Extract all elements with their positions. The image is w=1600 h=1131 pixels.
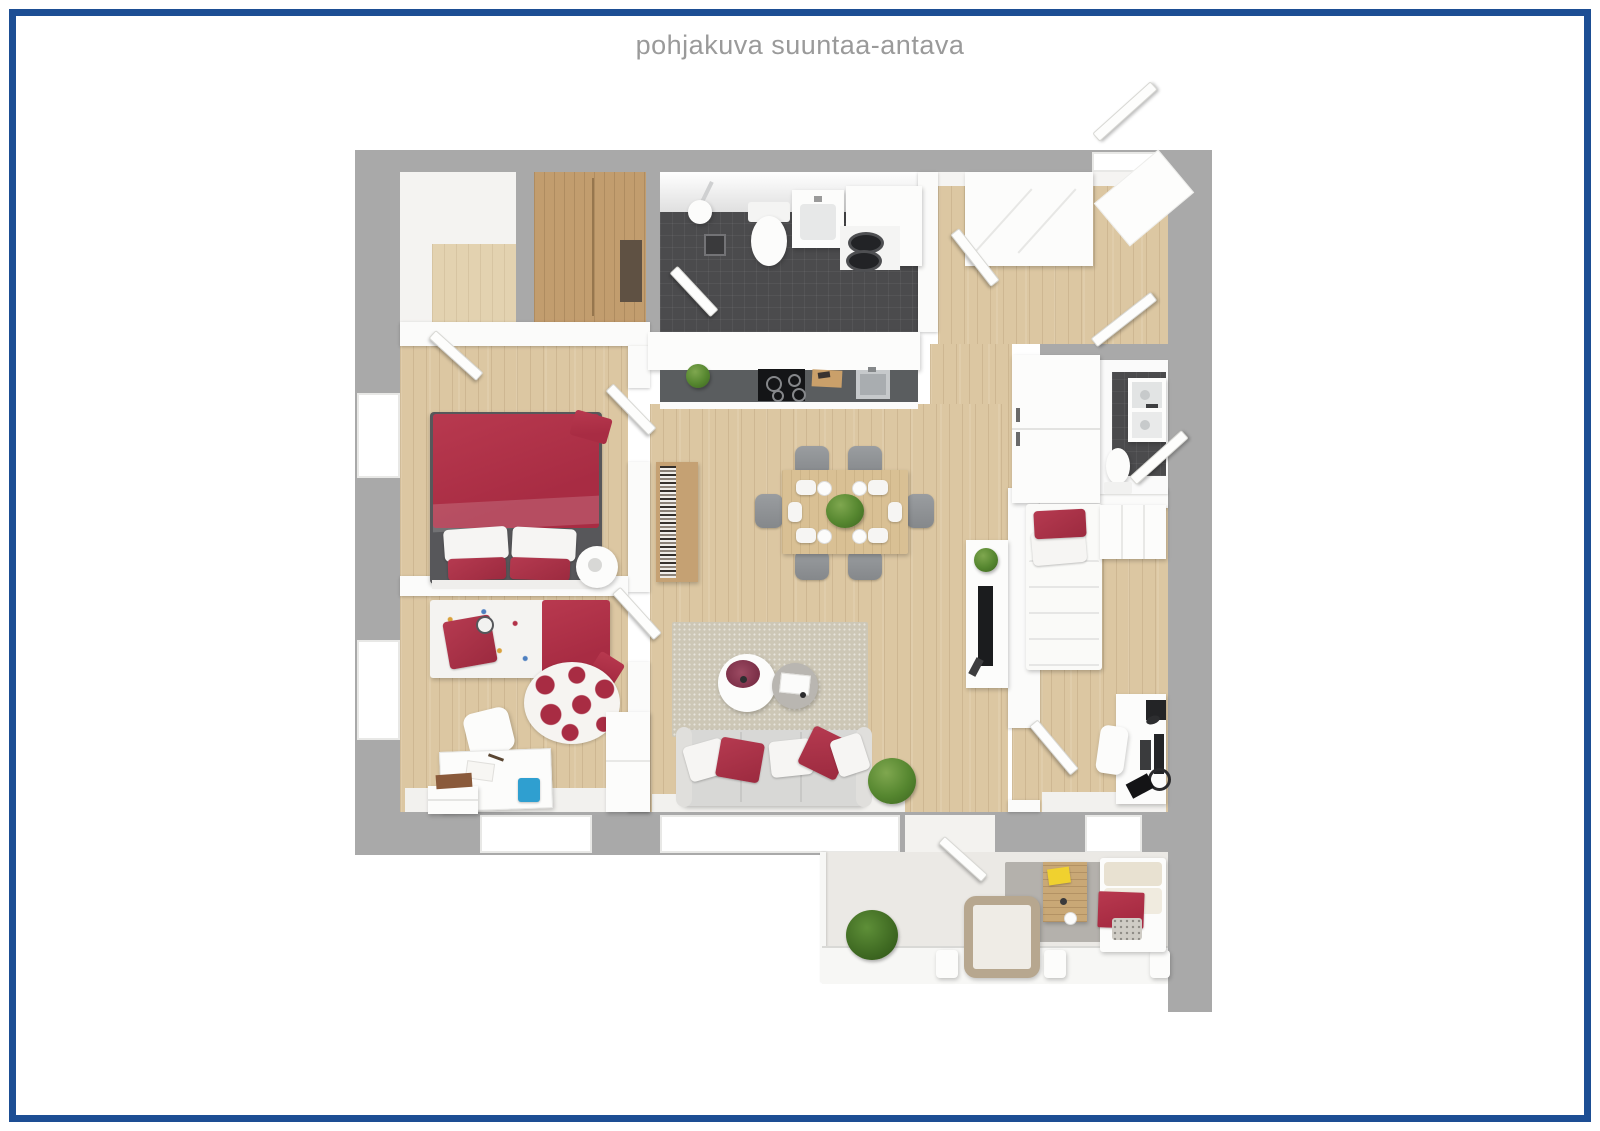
wall-left [355, 150, 400, 855]
toilet2-bowl [1106, 448, 1130, 484]
floorplan-page: pohjakuva suuntaa-antava [0, 0, 1600, 1131]
toilet-bowl [751, 216, 787, 266]
floor-drain-icon [704, 234, 726, 256]
burner-icon [788, 374, 801, 387]
kitchen-cabinet-front [660, 402, 918, 409]
accent-pillow [448, 557, 507, 581]
vanity-faucet [814, 196, 822, 202]
table-centerpiece-plant [826, 494, 864, 528]
wall-right [1168, 150, 1212, 1012]
table-decor-dot [800, 692, 806, 698]
tv-icon [978, 586, 993, 666]
kitchen-upper-cabinets [648, 332, 920, 370]
vanity2-faucet [1146, 404, 1158, 408]
wardrobe-shelf [620, 240, 642, 302]
window-kids-bottom [480, 815, 592, 853]
floor-plant [868, 758, 916, 804]
place-setting [868, 528, 888, 543]
closet-wood-floor [432, 244, 516, 322]
wardrobe2-seam [1121, 505, 1123, 559]
flower-bouquet [726, 660, 760, 688]
wardrobe2-seam [1143, 505, 1145, 559]
railing-post [1150, 950, 1170, 978]
toilet2-tank [1104, 482, 1132, 494]
railing-post [936, 950, 958, 978]
bed-headboard [432, 580, 600, 589]
burner-icon [772, 390, 784, 402]
wicker-chair [964, 896, 1040, 978]
open-front-door [1092, 81, 1157, 141]
wall-sauna-bath [646, 172, 660, 334]
balcony-bush-plant [846, 910, 898, 960]
railing-post [1044, 950, 1066, 978]
plate-icon [817, 481, 832, 496]
bedroom2-pillow-red [1033, 509, 1086, 540]
bookshelf-books [660, 466, 676, 578]
vase-icon [740, 676, 747, 683]
vanity2-sink-icon [1140, 390, 1150, 400]
kids-wardrobe [606, 712, 650, 812]
vanity2-sink-icon [1140, 420, 1150, 430]
partition-hall-upper [628, 346, 650, 388]
blue-bin [518, 778, 540, 802]
partition-hall-mid [628, 462, 650, 592]
window-kids-left [357, 640, 400, 740]
place-setting [868, 480, 888, 495]
shower-head-icon [688, 200, 712, 224]
drawer-seam [428, 799, 478, 801]
wall-top [355, 150, 1212, 172]
magazine [779, 672, 811, 695]
partition-living-bedroom2-stub [1008, 800, 1040, 812]
dining-chair [848, 550, 882, 580]
balcony-cushion [1104, 862, 1162, 886]
vanity-sink [800, 204, 836, 240]
place-setting [796, 528, 816, 543]
place-setting [796, 480, 816, 495]
kitchen-sink [856, 370, 890, 399]
dining-chair [755, 494, 783, 528]
window-master-left [357, 393, 400, 478]
fridge-seam [1012, 428, 1100, 430]
plate-icon [852, 481, 867, 496]
keyboard-icon [1140, 740, 1151, 770]
place-setting [788, 502, 802, 522]
burner-icon [792, 388, 806, 402]
fridge-handle [1016, 432, 1020, 446]
tv-stand-plant [974, 548, 998, 572]
entry-closet [965, 172, 1093, 266]
panda-toy-icon [476, 616, 494, 634]
plate-icon [817, 529, 832, 544]
kitchen-faucet [868, 367, 876, 372]
dining-chair [906, 494, 934, 528]
yellow-book [1047, 867, 1071, 886]
patterned-pillow [1112, 918, 1142, 940]
dining-chair [795, 550, 829, 580]
bedside-decor [588, 558, 602, 572]
bedroom2-wardrobe [1100, 505, 1166, 559]
table-decor-dot [1060, 898, 1067, 905]
wardrobe-door-seam [592, 178, 594, 316]
accent-pillow [510, 557, 571, 581]
place-setting [888, 502, 902, 522]
window-bedroom2-bottom [1085, 815, 1142, 853]
book-stack [436, 773, 473, 789]
floorplan [0, 0, 1600, 1131]
dryer-door-icon [846, 250, 882, 272]
fridge-handle [1016, 408, 1020, 422]
kitchen-plant [686, 364, 710, 388]
bedroom2-duvet [1029, 560, 1099, 668]
dish-icon [1064, 912, 1077, 925]
wardrobe-seam [606, 760, 650, 762]
plate-icon [852, 529, 867, 544]
window-living-bottom [660, 815, 900, 853]
sofa-pillow-red [715, 736, 765, 783]
